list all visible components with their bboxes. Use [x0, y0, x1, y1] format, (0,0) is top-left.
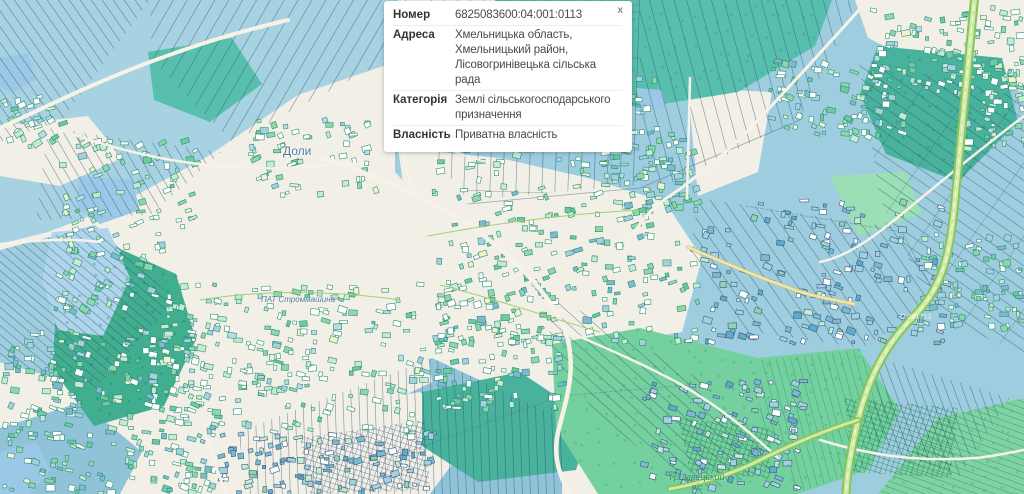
popup-row-label: Номер	[393, 8, 455, 23]
popup-row-label: Власність	[393, 128, 455, 143]
close-icon[interactable]: x	[615, 4, 625, 18]
forest-label-line1: Гринівецький	[669, 472, 724, 482]
parcel-info-popup: x Номер 6825083600:04:001:0113 Адреса Хм…	[384, 1, 632, 152]
popup-row-value: 6825083600:04:001:0113	[455, 8, 622, 23]
popup-row-ownership: Власність Приватна власність	[393, 125, 622, 145]
popup-row-value: Землі сільськогосподарського призначення	[455, 93, 622, 123]
popup-row-number: Номер 6825083600:04:001:0113	[393, 6, 622, 25]
settlement-label: Доли	[283, 144, 311, 158]
popup-row-label: Адреса	[393, 28, 455, 88]
popup-row-value: Хмельницька область, Хмельницький район,…	[455, 28, 622, 88]
forest-label-line2: ліс	[691, 482, 703, 492]
company-label: ПАТ Строммашина	[261, 295, 335, 304]
popup-row-category: Категорія Землі сільськогосподарського п…	[393, 90, 622, 125]
popup-row-label: Категорія	[393, 93, 455, 123]
popup-row-value: Приватна власність	[455, 128, 622, 143]
forest-label: Гринівецький ліс	[652, 472, 742, 492]
popup-row-address: Адреса Хмельницька область, Хмельницький…	[393, 25, 622, 90]
road-code-label: О-281713	[900, 314, 931, 321]
cadastral-map-viewport[interactable]: Доли ПАТ Строммашина Гринівецький ліс О-…	[0, 0, 1024, 494]
